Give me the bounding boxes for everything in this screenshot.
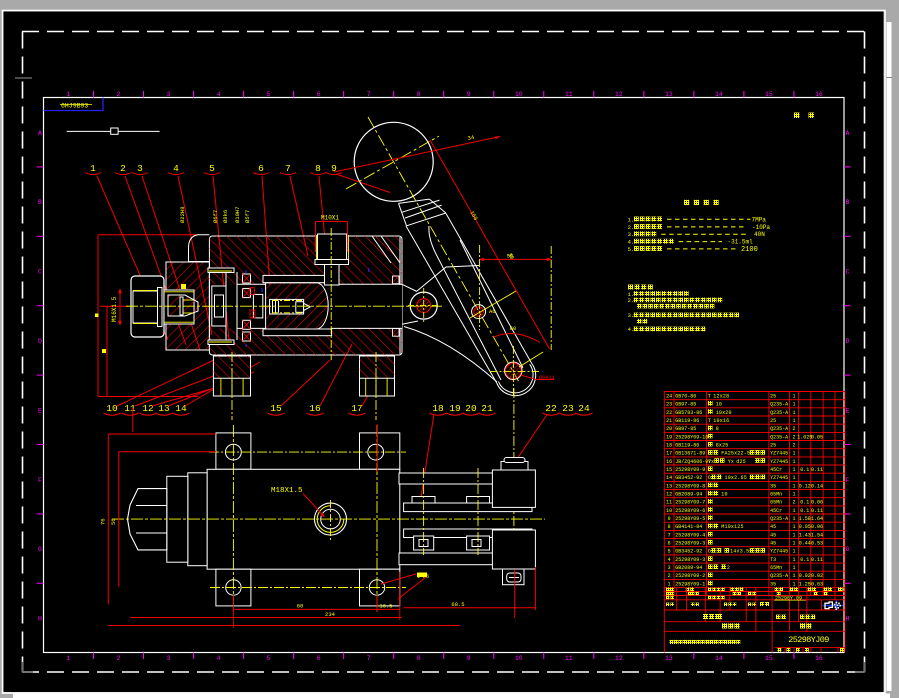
svg-text:8: 8: [668, 524, 671, 530]
svg-text:1.25: 1.25: [799, 581, 811, 587]
svg-text:H: H: [38, 616, 42, 623]
svg-text:5: 5: [741, 524, 744, 530]
svg-text:1: 1: [792, 451, 795, 457]
svg-text:A6: A6: [489, 308, 496, 315]
svg-text:1: 1: [792, 394, 795, 400]
svg-text:1: 1: [792, 541, 795, 547]
svg-text:7: 7: [668, 532, 671, 538]
svg-text:0.44: 0.44: [799, 541, 811, 547]
svg-text:T3: T3: [770, 557, 776, 563]
svg-text:Ø6f7: Ø6f7: [212, 210, 219, 223]
svg-text:1: 1: [90, 163, 96, 174]
svg-text:B: B: [38, 199, 42, 206]
svg-text:-10Pa: -10Pa: [752, 224, 770, 231]
svg-text:5: 5: [747, 451, 750, 457]
svg-text:0.06: 0.06: [811, 524, 823, 530]
svg-text:23: 23: [666, 402, 672, 408]
svg-text:YZ7445: YZ7445: [770, 459, 788, 465]
svg-text:0: 0: [719, 402, 722, 408]
svg-text:8: 8: [716, 426, 719, 432]
svg-text:10: 10: [106, 403, 118, 414]
svg-text:1.58: 1.58: [799, 516, 811, 522]
svg-text:GB3452-92: GB3452-92: [675, 475, 702, 481]
svg-text:25298Y09-9: 25298Y09-9: [675, 467, 705, 473]
svg-text:12: 12: [142, 403, 154, 414]
svg-text:22: 22: [545, 403, 557, 414]
svg-text:0.63: 0.63: [811, 581, 823, 587]
svg-text:12: 12: [615, 91, 623, 98]
svg-text:56: 56: [110, 518, 117, 525]
svg-text:6: 6: [317, 655, 321, 662]
svg-text:1: 1: [792, 508, 795, 514]
svg-text:0.14: 0.14: [811, 483, 823, 489]
svg-text:1: 1: [792, 573, 795, 579]
svg-text:4.: 4.: [628, 326, 635, 333]
svg-text:0.05: 0.05: [811, 434, 823, 440]
svg-text:D: D: [38, 338, 42, 345]
svg-text:60: 60: [297, 603, 304, 610]
svg-text:16.5: 16.5: [379, 603, 392, 610]
svg-text:60: 60: [510, 325, 517, 332]
svg-text:T: T: [708, 394, 711, 400]
svg-text:8: 8: [726, 394, 729, 400]
svg-text:9: 9: [668, 516, 671, 522]
svg-text:12: 12: [615, 655, 623, 662]
svg-text:25298Y09-3: 25298Y09-3: [675, 557, 705, 563]
svg-text:21: 21: [666, 418, 672, 424]
svg-text:25298Y09-6: 25298Y09-6: [675, 508, 705, 514]
svg-text:T: T: [708, 418, 711, 424]
svg-text:O: O: [708, 549, 711, 555]
svg-text:19: 19: [449, 403, 461, 414]
svg-text:H: H: [846, 616, 850, 623]
svg-text:E: E: [846, 407, 850, 414]
svg-text:7MPa: 7MPa: [752, 216, 767, 223]
svg-text:65Mn: 65Mn: [770, 500, 782, 506]
svg-text:1: 1: [792, 492, 795, 498]
svg-text:68.5: 68.5: [451, 601, 464, 608]
svg-text:50: 50: [507, 253, 514, 260]
svg-text:M18X1.5: M18X1.5: [271, 487, 303, 495]
svg-text:2: 2: [117, 91, 121, 98]
svg-text:5: 5: [209, 163, 215, 174]
svg-text:GB70-86: GB70-86: [675, 394, 696, 400]
svg-text:3: 3: [137, 163, 143, 174]
svg-text:1.43: 1.43: [799, 532, 811, 538]
svg-text:GB5783-86: GB5783-86: [675, 410, 702, 416]
svg-text:0.12: 0.12: [799, 483, 811, 489]
svg-text:Q235-A: Q235-A: [770, 434, 788, 440]
svg-text:GB97-85: GB97-85: [675, 426, 696, 432]
svg-text:25298Y09-18: 25298Y09-18: [675, 434, 708, 440]
svg-text:JB/ZQ4606-97: JB/ZQ4606-97: [675, 459, 711, 465]
svg-text:3: 3: [167, 655, 171, 662]
svg-text:0.1: 0.1: [800, 557, 809, 563]
svg-text:1: 1: [792, 524, 795, 530]
svg-text:2: 2: [792, 434, 795, 440]
svg-text:15: 15: [765, 655, 773, 662]
svg-text:7: 7: [367, 655, 371, 662]
svg-text:GB3452-92: GB3452-92: [675, 549, 702, 555]
svg-text:35: 35: [770, 581, 776, 587]
svg-text:1: 1: [792, 557, 795, 563]
svg-text:Ø22H8: Ø22H8: [179, 206, 186, 223]
svg-text:GB119-86: GB119-86: [675, 418, 699, 424]
svg-text:GB13871-89: GB13871-89: [675, 451, 705, 457]
svg-text:15: 15: [270, 403, 282, 414]
svg-text:4: 4: [217, 655, 221, 662]
svg-text:15: 15: [765, 91, 773, 98]
svg-text:1: 1: [792, 549, 795, 555]
svg-text:17: 17: [351, 403, 362, 414]
svg-text:21: 21: [481, 403, 493, 414]
svg-text:11: 11: [124, 403, 136, 414]
svg-text:0.11: 0.11: [811, 467, 823, 473]
svg-text:A: A: [38, 130, 42, 137]
svg-text:5: 5: [668, 549, 671, 555]
svg-text:x: x: [711, 459, 714, 465]
svg-text:13: 13: [665, 91, 673, 98]
svg-text:-31.5ml: -31.5ml: [728, 239, 754, 246]
svg-text:8: 8: [417, 655, 421, 662]
svg-text:x: x: [731, 459, 734, 465]
svg-text:18: 18: [666, 443, 672, 449]
svg-text:25: 25: [770, 394, 776, 400]
svg-text:5: 5: [744, 475, 747, 481]
svg-text:25: 25: [770, 418, 776, 424]
svg-text:Ø5f7: Ø5f7: [244, 210, 251, 223]
svg-text:B: B: [846, 199, 850, 206]
svg-text:1: 1: [792, 410, 795, 416]
svg-text:7: 7: [285, 163, 291, 174]
svg-text:6: 6: [317, 91, 321, 98]
svg-text:5.: 5.: [628, 246, 635, 253]
svg-text:GB119-86: GB119-86: [675, 443, 699, 449]
svg-text:1: 1: [67, 91, 71, 98]
svg-text:5: 5: [267, 91, 271, 98]
svg-text:65Mn: 65Mn: [770, 565, 782, 571]
svg-text:4: 4: [668, 557, 671, 563]
svg-text:5: 5: [725, 443, 728, 449]
svg-text:12: 12: [666, 492, 672, 498]
svg-text:GB2089-94: GB2089-94: [675, 492, 702, 498]
svg-text:1: 1: [668, 581, 671, 587]
svg-text:0.11: 0.11: [811, 557, 823, 563]
svg-text:25298Y09-4: 25298Y09-4: [675, 532, 705, 538]
svg-text:3: 3: [668, 565, 671, 571]
svg-text:YZ7445: YZ7445: [770, 451, 788, 457]
svg-text:19: 19: [666, 434, 672, 440]
svg-text:4: 4: [217, 91, 221, 98]
svg-text:1: 1: [792, 467, 795, 473]
svg-text:14: 14: [175, 403, 187, 414]
svg-text:9: 9: [467, 91, 471, 98]
svg-text:0.02: 0.02: [811, 573, 823, 579]
svg-text:6: 6: [258, 163, 264, 174]
svg-text:GB97-85: GB97-85: [675, 402, 696, 408]
svg-text:1: 1: [792, 459, 795, 465]
svg-text:45: 45: [770, 524, 776, 530]
svg-text:YZ7445: YZ7445: [770, 475, 788, 481]
svg-text:1: 1: [792, 532, 795, 538]
svg-text:11: 11: [565, 91, 573, 98]
svg-text:25298Y09-8: 25298Y09-8: [675, 483, 705, 489]
svg-text:Q235-A: Q235-A: [770, 573, 788, 579]
svg-text:14: 14: [715, 91, 723, 98]
svg-text:C: C: [846, 269, 850, 276]
svg-text:23: 23: [562, 403, 574, 414]
svg-text:0.02: 0.02: [799, 573, 811, 579]
svg-text:YZ7445: YZ7445: [770, 549, 788, 555]
svg-text:13: 13: [666, 483, 672, 489]
svg-text:14: 14: [715, 655, 723, 662]
svg-text:0: 0: [729, 410, 732, 416]
svg-text:2100: 2100: [741, 246, 758, 254]
svg-text:M16X1.5: M16X1.5: [111, 296, 118, 322]
svg-text:6: 6: [668, 541, 671, 547]
svg-text:3.: 3.: [628, 312, 635, 319]
svg-text:0.1: 0.1: [800, 500, 809, 506]
svg-text:0.1: 0.1: [800, 467, 809, 473]
svg-text:11: 11: [565, 655, 573, 662]
svg-text:1: 1: [792, 483, 795, 489]
svg-text:2: 2: [727, 565, 730, 571]
svg-text:1.025: 1.025: [797, 434, 812, 440]
svg-text:24: 24: [666, 394, 672, 400]
svg-text:5: 5: [743, 459, 746, 465]
svg-text:2.: 2.: [628, 297, 635, 304]
svg-text:1.54: 1.54: [811, 532, 823, 538]
svg-text:G: G: [846, 546, 850, 553]
svg-text:8: 8: [417, 91, 421, 98]
svg-text:1: 1: [792, 402, 795, 408]
svg-text:10: 10: [666, 508, 672, 514]
svg-text:F: F: [38, 477, 42, 484]
svg-text:25298Y09-2: 25298Y09-2: [675, 573, 705, 579]
svg-text:25298Y09-7: 25298Y09-7: [675, 500, 705, 506]
svg-text:20: 20: [666, 426, 672, 432]
svg-text:13: 13: [158, 403, 170, 414]
svg-text:0.06: 0.06: [811, 500, 823, 506]
svg-text:G: G: [38, 546, 42, 553]
svg-text:O: O: [708, 475, 711, 481]
svg-text:1: 1: [792, 516, 795, 522]
svg-text:45: 45: [770, 532, 776, 538]
svg-text:0.1: 0.1: [800, 508, 809, 514]
svg-text:1: 1: [67, 655, 71, 662]
svg-text:17: 17: [666, 451, 672, 457]
svg-text:40N: 40N: [754, 231, 765, 238]
svg-text:M10X1: M10X1: [321, 215, 339, 222]
svg-text:1.64: 1.64: [811, 516, 823, 522]
svg-text:GB2089-94: GB2089-94: [675, 565, 702, 571]
svg-text:A: A: [846, 130, 850, 137]
svg-text:2: 2: [792, 443, 795, 449]
svg-text:1: 1: [792, 565, 795, 571]
svg-text:D: D: [846, 338, 850, 345]
svg-text:0.11: 0.11: [811, 508, 823, 514]
svg-text:0.53: 0.53: [811, 541, 823, 547]
svg-text:3: 3: [167, 91, 171, 98]
svg-text:Ø6H11: Ø6H11: [539, 374, 555, 381]
svg-text:45Cr: 45Cr: [770, 508, 782, 514]
svg-text:16: 16: [666, 459, 672, 465]
svg-text:10: 10: [515, 91, 523, 98]
svg-text:16: 16: [815, 91, 823, 98]
svg-text:4.: 4.: [628, 239, 635, 246]
svg-text:14: 14: [666, 475, 672, 481]
svg-text:16: 16: [815, 655, 823, 662]
svg-text:Q235-A: Q235-A: [770, 410, 788, 416]
svg-text:2: 2: [792, 500, 795, 506]
svg-text:2: 2: [120, 163, 126, 174]
svg-text:5: 5: [267, 655, 271, 662]
svg-text:3.: 3.: [628, 231, 635, 238]
svg-text:Q235-A: Q235-A: [770, 426, 788, 432]
svg-text:1: 1: [792, 418, 795, 424]
svg-text:24: 24: [578, 403, 590, 414]
svg-text:2: 2: [668, 573, 671, 579]
svg-text:E: E: [38, 407, 42, 414]
svg-text:25: 25: [770, 443, 776, 449]
svg-text:11: 11: [666, 500, 672, 506]
svg-text:13: 13: [665, 655, 673, 662]
svg-text:C: C: [38, 269, 42, 276]
svg-text:6: 6: [726, 418, 729, 424]
svg-text:2: 2: [792, 426, 795, 432]
svg-text:1.: 1.: [628, 216, 635, 223]
svg-text:65Mn: 65Mn: [770, 492, 782, 498]
svg-text:234: 234: [325, 611, 336, 618]
svg-text:76: 76: [100, 518, 107, 525]
svg-text:1: 1: [792, 581, 795, 587]
svg-text:1: 1: [792, 475, 795, 481]
svg-text:Ø10H7: Ø10H7: [234, 206, 241, 223]
svg-text:0.05: 0.05: [799, 524, 811, 530]
svg-text:15: 15: [666, 467, 672, 473]
svg-text:2: 2: [117, 655, 121, 662]
svg-text:10: 10: [515, 655, 523, 662]
svg-text:F: F: [846, 477, 850, 484]
svg-text:4: 4: [173, 163, 179, 174]
svg-text:Q235-A: Q235-A: [770, 516, 788, 522]
svg-text:25298Y09-3: 25298Y09-3: [675, 541, 705, 547]
svg-text:GB4141-84: GB4141-84: [675, 524, 702, 530]
svg-text:7: 7: [367, 91, 371, 98]
svg-text:9: 9: [467, 655, 471, 662]
svg-text:18: 18: [432, 403, 444, 414]
svg-text:20: 20: [465, 403, 477, 414]
svg-text:22: 22: [666, 410, 672, 416]
svg-text:6HJ9B93: 6HJ9B93: [61, 103, 88, 110]
svg-text:0: 0: [725, 492, 728, 498]
svg-text:8: 8: [315, 163, 321, 174]
svg-text:16: 16: [309, 403, 321, 414]
svg-text:35: 35: [770, 483, 776, 489]
svg-text:45: 45: [770, 541, 776, 547]
svg-text:25298Y09-5: 25298Y09-5: [675, 516, 705, 522]
svg-text:25298YJ09: 25298YJ09: [788, 635, 829, 645]
svg-text:Ø8k6: Ø8k6: [222, 210, 229, 223]
svg-text:25298Y09-1: 25298Y09-1: [675, 581, 705, 587]
svg-text:2.: 2.: [628, 224, 635, 231]
svg-text:45Cr: 45Cr: [770, 467, 782, 473]
svg-text:Q235-A: Q235-A: [770, 402, 788, 408]
